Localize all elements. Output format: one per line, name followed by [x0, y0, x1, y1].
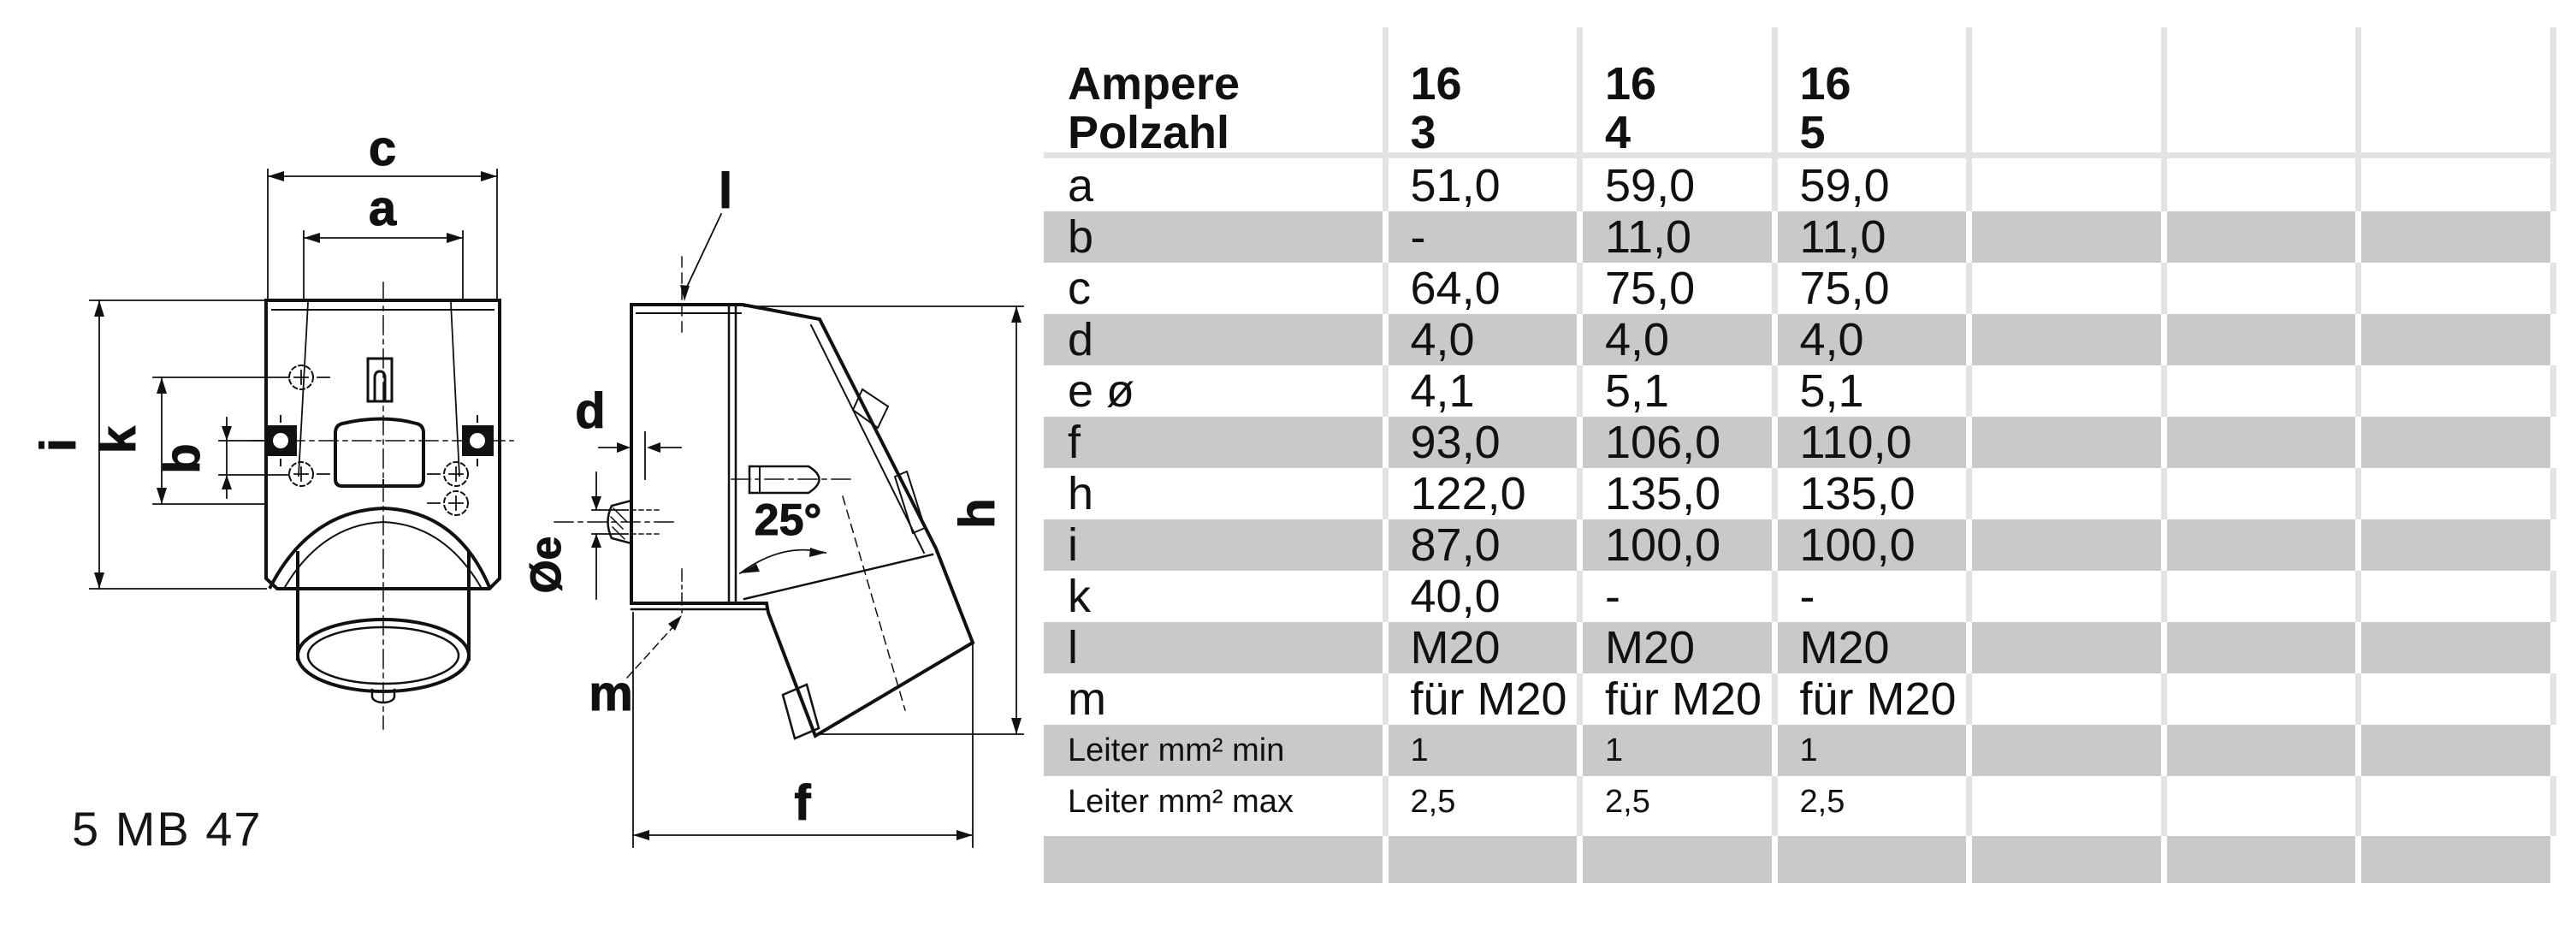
- row-value: [2361, 571, 2550, 622]
- row-value: [1972, 417, 2161, 468]
- row-value: [1972, 673, 2161, 725]
- empty-cell: [1972, 836, 2161, 883]
- row-value: [2167, 211, 2356, 263]
- row-value: 100,0: [1778, 519, 1967, 571]
- row-value: 75,0: [1778, 263, 1967, 314]
- row-value: -: [1389, 211, 1578, 263]
- table-row-e-: e ø4,15,15,1: [1044, 365, 2556, 417]
- table-row-leiter-mm-min: Leiter mm² min111: [1044, 725, 2556, 776]
- dim-label-h: h: [950, 498, 1005, 528]
- table-header: AmperePolzahl163164165: [1044, 60, 2556, 157]
- row-value: für M20: [1778, 673, 1967, 725]
- row-value: 4,0: [1389, 314, 1578, 365]
- front-view: c a i k b: [31, 121, 513, 729]
- row-value: [2167, 622, 2356, 673]
- row-value: [2167, 673, 2356, 725]
- table-row-f: f93,0106,0110,0: [1044, 417, 2556, 468]
- row-value: [2167, 263, 2356, 314]
- row-value: [1972, 571, 2161, 622]
- row-value: 4,1: [1389, 365, 1578, 417]
- row-value: 87,0: [1389, 519, 1578, 571]
- dim-d: [599, 432, 681, 479]
- header-label-cell: AmperePolzahl: [1044, 60, 1383, 157]
- row-value: 106,0: [1583, 417, 1772, 468]
- row-value: [2167, 160, 2356, 211]
- row-label: h: [1044, 468, 1383, 519]
- row-value: 2,5: [1778, 776, 1967, 827]
- row-value: [1972, 622, 2161, 673]
- lid-outline: [335, 419, 423, 487]
- row-value: M20: [1778, 622, 1967, 673]
- row-value: [1972, 776, 2161, 827]
- row-label: f: [1044, 417, 1383, 468]
- row-label: e ø: [1044, 365, 1383, 417]
- row-value: 40,0: [1389, 571, 1578, 622]
- header-column-4: [1972, 60, 2161, 157]
- row-value: [1972, 365, 2161, 417]
- dim-label-m: m: [589, 666, 633, 721]
- row-label: c: [1044, 263, 1383, 314]
- row-value: [2361, 519, 2550, 571]
- polzahl-value: 3: [1411, 109, 1578, 157]
- row-value: 4,0: [1583, 314, 1772, 365]
- header-column-3: 165: [1778, 60, 1967, 157]
- dim-label-i: i: [31, 438, 86, 452]
- brand-logo-mark: [368, 359, 392, 401]
- empty-cell: [2167, 836, 2356, 883]
- row-value: [1972, 519, 2161, 571]
- row-value: [2167, 468, 2356, 519]
- empty-cell: [1778, 836, 1967, 883]
- outlet-spout: [270, 508, 489, 703]
- ampere-value: 16: [1411, 60, 1578, 109]
- row-value: [2361, 365, 2550, 417]
- row-value: [2167, 314, 2356, 365]
- dim-b: [222, 418, 232, 498]
- row-value: [2167, 365, 2356, 417]
- polzahl-value: 5: [1800, 109, 1967, 157]
- row-label: k: [1044, 571, 1383, 622]
- row-value: [1972, 160, 2161, 211]
- header-column-5: [2167, 60, 2356, 157]
- row-value: [2361, 160, 2550, 211]
- row-value: 2,5: [1389, 776, 1578, 827]
- row-value: [2361, 468, 2550, 519]
- row-value: [2167, 571, 2356, 622]
- dim-label-b: b: [155, 443, 210, 473]
- row-value: [2167, 519, 2356, 571]
- row-value: 59,0: [1583, 160, 1772, 211]
- row-value: [2361, 725, 2550, 776]
- dim-label-c: c: [369, 121, 396, 176]
- dim-k: [157, 377, 167, 504]
- angle-arc: [740, 548, 826, 573]
- row-value: 11,0: [1583, 211, 1772, 263]
- datasheet-page: c a i k b: [0, 0, 2576, 931]
- table-row-l: lM20M20M20: [1044, 622, 2556, 673]
- clamp-right: [462, 416, 494, 465]
- header-separator: [1044, 152, 2556, 158]
- row-value: [2167, 725, 2356, 776]
- row-value: 5,1: [1583, 365, 1772, 417]
- row-value: [2361, 776, 2550, 827]
- table-row-m: mfür M20für M20für M20: [1044, 673, 2556, 725]
- row-value: 110,0: [1778, 417, 1967, 468]
- row-value: M20: [1389, 622, 1578, 673]
- row-value: 1: [1583, 725, 1772, 776]
- row-value: 5,1: [1778, 365, 1967, 417]
- row-value: M20: [1583, 622, 1772, 673]
- row-value: 51,0: [1389, 160, 1578, 211]
- row-value: [2361, 417, 2550, 468]
- dimension-table: AmperePolzahl163164165a51,059,059,0b-11,…: [1044, 27, 2556, 883]
- header-polzahl-label: Polzahl: [1068, 109, 1383, 157]
- row-value: [1972, 263, 2161, 314]
- row-value: [1972, 314, 2161, 365]
- row-value: [2361, 263, 2550, 314]
- row-label: Leiter mm² max: [1044, 776, 1383, 827]
- row-value: 93,0: [1389, 417, 1578, 468]
- row-value: 4,0: [1778, 314, 1967, 365]
- header-column-6: [2361, 60, 2550, 157]
- polzahl-value: 4: [1605, 109, 1772, 157]
- empty-cell: [1389, 836, 1578, 883]
- row-value: [1972, 468, 2161, 519]
- table-row-i: i87,0100,0100,0: [1044, 519, 2556, 571]
- ampere-value: 16: [1605, 60, 1772, 109]
- row-value: -: [1778, 571, 1967, 622]
- row-label: m: [1044, 673, 1383, 725]
- side-view: l d Øe 25° m h f: [522, 163, 1023, 847]
- row-label: a: [1044, 160, 1383, 211]
- dim-label-k: k: [91, 425, 146, 454]
- fixing-screw: [554, 501, 678, 543]
- row-label: l: [1044, 622, 1383, 673]
- technical-drawing: c a i k b: [0, 0, 1052, 931]
- row-value: 75,0: [1583, 263, 1772, 314]
- dim-label-angle: 25°: [755, 495, 822, 545]
- table-footer-empty-row: [1044, 836, 2556, 883]
- row-label: Leiter mm² min: [1044, 725, 1383, 776]
- row-value: [2361, 673, 2550, 725]
- row-value: 2,5: [1583, 776, 1772, 827]
- table-row-a: a51,059,059,0: [1044, 160, 2556, 211]
- table-row-h: h122,0135,0135,0: [1044, 468, 2556, 519]
- table-row-leiter-mm-max: Leiter mm² max2,52,52,5: [1044, 776, 2556, 827]
- table-row-k: k40,0--: [1044, 571, 2556, 622]
- ampere-value: 16: [1800, 60, 1967, 109]
- part-number: 5 MB 47: [72, 801, 263, 857]
- row-value: 122,0: [1389, 468, 1578, 519]
- empty-cell: [2361, 836, 2550, 883]
- leader-m: [627, 569, 682, 678]
- table-row-c: c64,075,075,0: [1044, 263, 2556, 314]
- row-value: 1: [1389, 725, 1578, 776]
- header-column-2: 164: [1583, 60, 1772, 157]
- row-value: [2167, 417, 2356, 468]
- dim-label-diameter-e: Øe: [522, 537, 570, 594]
- row-label: d: [1044, 314, 1383, 365]
- row-value: 64,0: [1389, 263, 1578, 314]
- table-row-d: d4,04,04,0: [1044, 314, 2556, 365]
- row-value: [1972, 211, 2161, 263]
- leader-l: [680, 214, 721, 335]
- row-value: für M20: [1583, 673, 1772, 725]
- header-ampere-label: Ampere: [1068, 60, 1383, 109]
- row-value: für M20: [1389, 673, 1578, 725]
- row-value: [2167, 776, 2356, 827]
- row-value: 59,0: [1778, 160, 1967, 211]
- dim-label-d: d: [575, 383, 605, 439]
- header-column-1: 163: [1389, 60, 1578, 157]
- dim-label-f: f: [794, 775, 811, 831]
- dim-label-l: l: [719, 163, 732, 219]
- row-value: 11,0: [1778, 211, 1967, 263]
- empty-cell: [1583, 836, 1772, 883]
- row-value: 135,0: [1778, 468, 1967, 519]
- row-value: -: [1583, 571, 1772, 622]
- row-value: 1: [1778, 725, 1967, 776]
- table-row-b: b-11,011,0: [1044, 211, 2556, 263]
- row-value: [2361, 622, 2550, 673]
- row-label: i: [1044, 519, 1383, 571]
- row-value: 100,0: [1583, 519, 1772, 571]
- row-value: 135,0: [1583, 468, 1772, 519]
- dim-label-a: a: [369, 181, 397, 236]
- row-value: [2361, 314, 2550, 365]
- row-label: b: [1044, 211, 1383, 263]
- row-value: [1972, 725, 2161, 776]
- empty-cell: [1044, 836, 1383, 883]
- row-value: [2361, 211, 2550, 263]
